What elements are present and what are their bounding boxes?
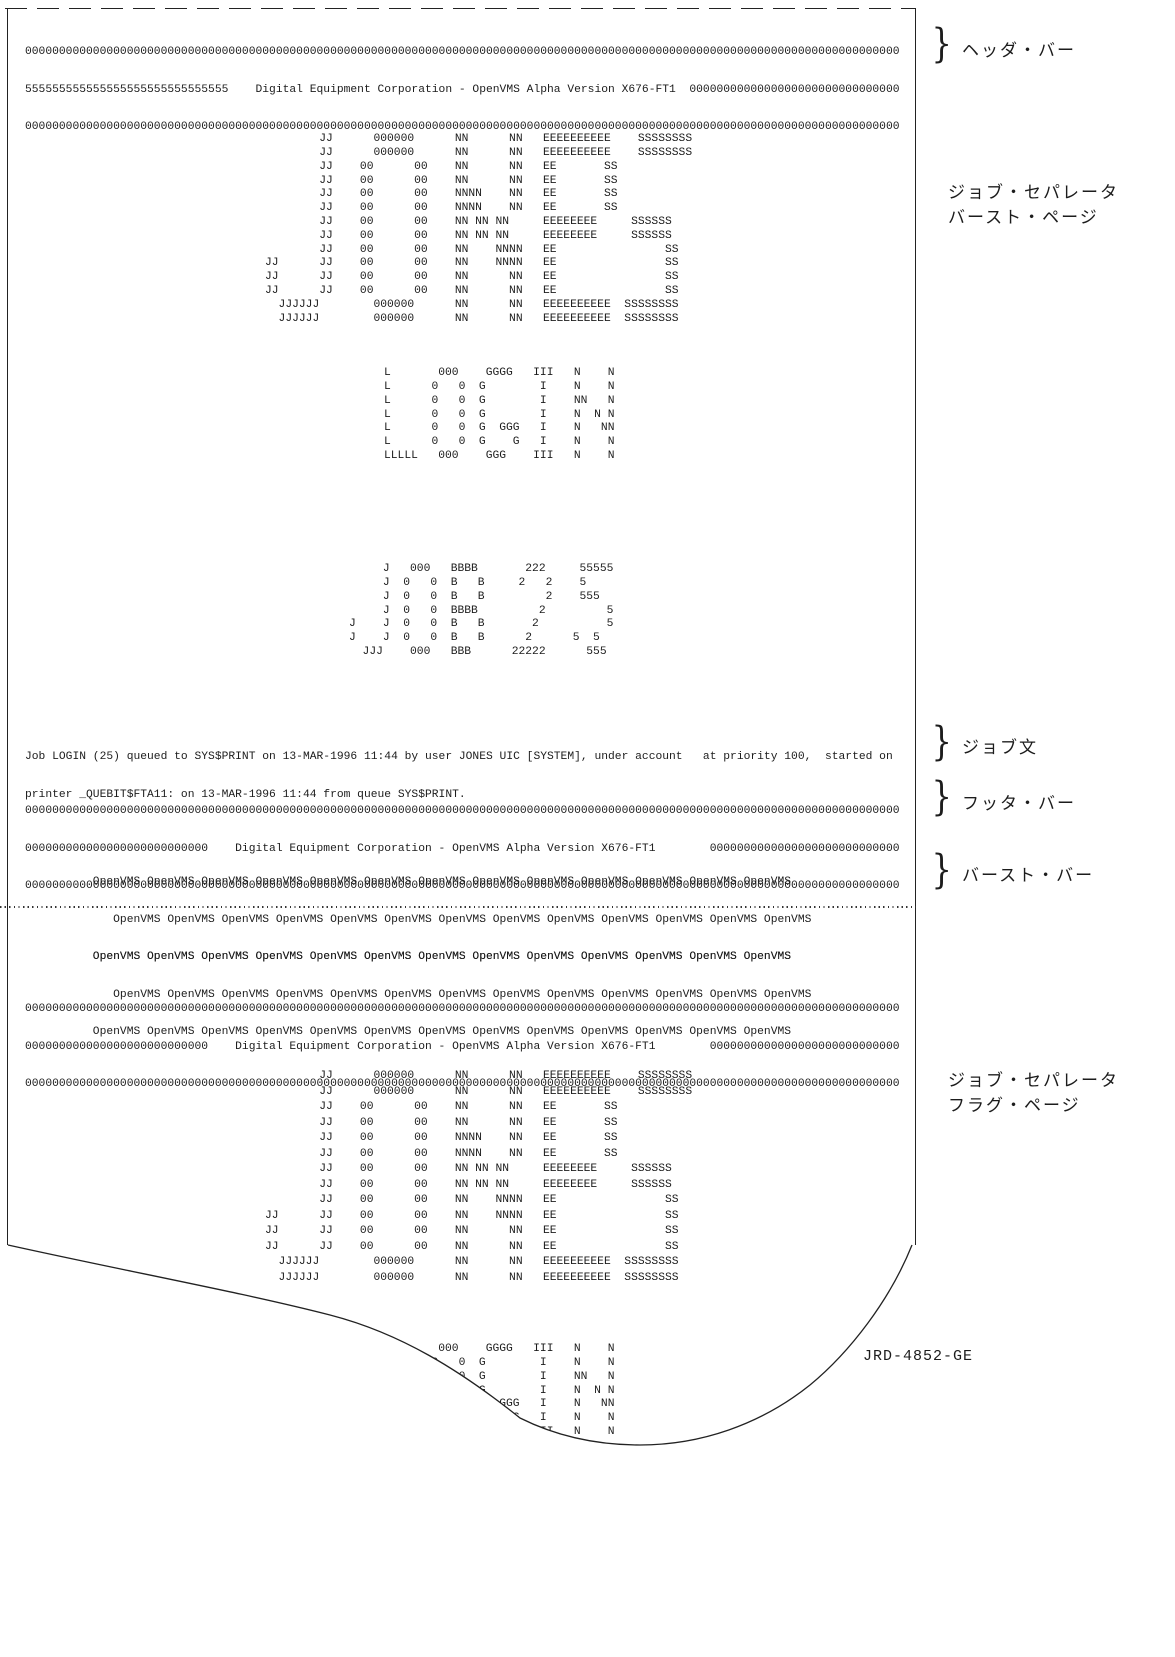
openvms-row: OpenVMS OpenVMS OpenVMS OpenVMS OpenVMS … xyxy=(25,951,811,965)
footer-bar-line1: 0000000000000000000000000000000000000000… xyxy=(25,805,900,819)
page-top-dashed-border xyxy=(5,8,916,9)
annotation-job-text: ジョブ文 xyxy=(962,733,1038,758)
annotation-job-separator-flag-line1: ジョブ・セパレータ xyxy=(948,1066,1119,1091)
annotation-job-separator-burst-line1: ジョブ・セパレータ xyxy=(948,178,1119,203)
openvms-row: OpenVMS OpenVMS OpenVMS OpenVMS OpenVMS … xyxy=(25,876,811,890)
annotation-job-separator-flag-line2: フラグ・ページ xyxy=(948,1091,1081,1116)
annotation-footer-bar: フッタ・バー xyxy=(962,789,1076,814)
header-bar-line1: 0000000000000000000000000000000000000000… xyxy=(25,46,900,60)
annotation-job-separator-burst-line2: バースト・ページ xyxy=(948,203,1099,228)
brace-icon: } xyxy=(932,850,952,890)
flag-header-line1: 0000000000000000000000000000000000000000… xyxy=(25,1003,900,1017)
annotation-burst-bar: バースト・バー xyxy=(962,861,1094,886)
jones-banner-burst: JJ 000000 NN NN EEEEEEEEEE SSSSSSSS JJ 0… xyxy=(265,133,692,326)
brace-icon: } xyxy=(932,24,952,64)
flag-header-line2: 000000000000000000000000000 Digital Equi… xyxy=(25,1041,900,1055)
login-banner: L 000 GGGG III N N L 0 0 G I N N L 0 0 G… xyxy=(384,367,615,464)
login-banner-partial: L 000 GGGG III N N L 0 0 G I N N L 0 0 G… xyxy=(384,1343,615,1440)
job-text-line1: Job LOGIN (25) queued to SYS$PRINT on 13… xyxy=(25,751,893,765)
page-left-border xyxy=(7,8,8,1245)
brace-icon: } xyxy=(932,722,952,762)
page-right-border xyxy=(915,8,916,1245)
job-number-banner: J 000 BBBB 222 55555 J 0 0 B B 2 2 5 J 0… xyxy=(349,563,613,660)
annotation-header-bar: ヘッダ・バー xyxy=(962,36,1076,61)
burst-bar-dotted-line xyxy=(0,906,916,908)
figure-label: JRD-4852-GE xyxy=(863,1348,973,1365)
openvms-row: OpenVMS OpenVMS OpenVMS OpenVMS OpenVMS … xyxy=(25,914,811,928)
torn-printout-page: 0000000000000000000000000000000000000000… xyxy=(0,0,1175,1657)
header-bar-line2: 555555555555555555555555555555 Digital E… xyxy=(25,84,900,98)
jones-banner-flag: JJ 000000 NN NN EEEEEEEEEE SSSSSSSS JJ 0… xyxy=(265,1069,692,1286)
brace-icon: } xyxy=(932,777,952,817)
